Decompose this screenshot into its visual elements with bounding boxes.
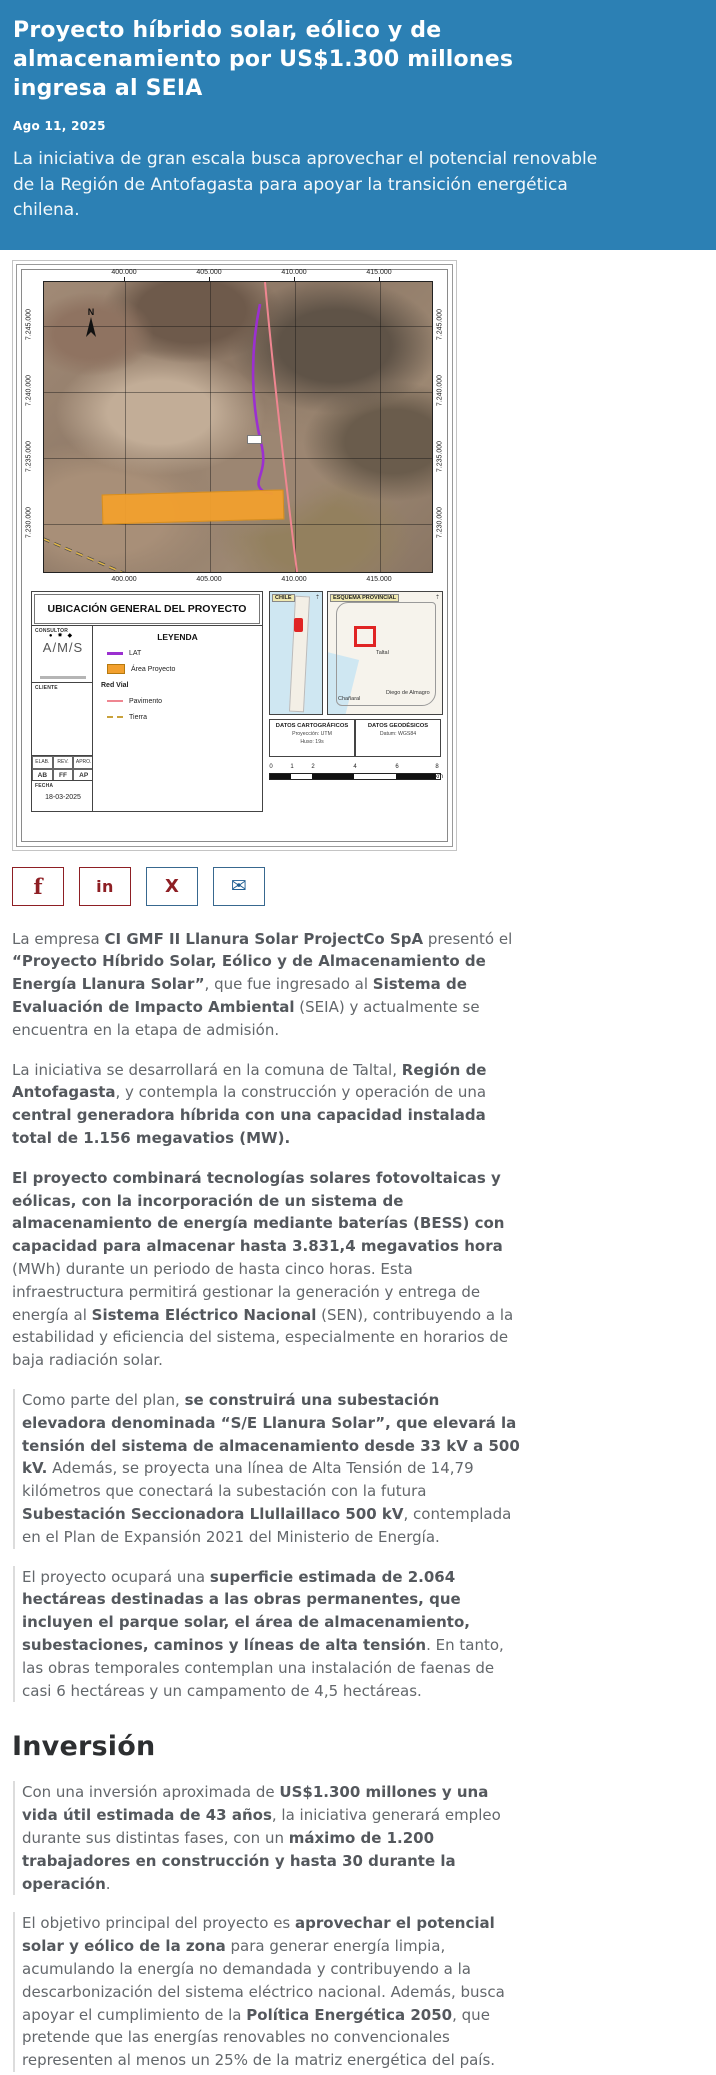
datos-title: DATOS CARTOGRÁFICOS [270, 723, 354, 729]
map-y-label: 7.230.000 [437, 497, 444, 547]
esquema-provincial-inset: ESQUEMA PROVINCIAL ⇡ Taltal Chañaral Die… [327, 591, 443, 715]
scale-tick: 6 [395, 764, 398, 770]
map-y-label: 7.235.000 [26, 431, 33, 481]
fecha-box: FECHA 18-03-2025 [31, 780, 95, 812]
project-location-map: 400.000 405.000 410.000 415.000 400.000 … [12, 260, 457, 851]
article-paragraph: Con una inversión aproximada de US$1.300… [13, 1781, 524, 1895]
scale-tick: 0 [269, 764, 272, 770]
share-email-button[interactable]: ✉ [213, 867, 265, 906]
map-x-label: 405.000 [177, 576, 241, 583]
article-paragraph: El proyecto combinará tecnologías solare… [12, 1167, 524, 1372]
map-y-label: 7.245.000 [437, 299, 444, 349]
area-swatch [107, 664, 125, 674]
map-y-label: 7.240.000 [437, 365, 444, 415]
legend-item: LAT [129, 650, 141, 657]
north-label: N [88, 307, 95, 317]
scale-seg [354, 774, 396, 779]
facebook-icon: f [33, 874, 42, 899]
north-arrow-small: ⇡ [315, 594, 320, 601]
scale-bar: 0 1 2 4 6 8 km [269, 764, 441, 790]
datos-line: Huso: 19s [270, 739, 354, 745]
datos-line: Datum: WGS84 [356, 731, 440, 737]
map-x-label: 410.000 [262, 269, 326, 276]
article-paragraph: El objetivo principal del proyecto es ap… [13, 1912, 524, 2072]
scale-seg [291, 774, 312, 779]
pavimento-road-line [265, 282, 297, 572]
chile-inset-label: CHILE [272, 594, 295, 602]
publish-date: Ago 11, 2025 [13, 119, 702, 133]
approvals-header: APRO. [73, 756, 94, 769]
map-y-label: 7.230.000 [26, 497, 33, 547]
scale-tick: 8 [435, 764, 438, 770]
consultor-logo: A/M/S [32, 640, 94, 655]
datos-line: Proyección: UTM [270, 731, 354, 737]
section-heading: Inversión [12, 1726, 524, 1767]
scale-seg [312, 774, 354, 779]
datos-cartograficos: DATOS CARTOGRÁFICOS Proyección: UTM Huso… [269, 719, 355, 757]
datos-row: DATOS CARTOGRÁFICOS Proyección: UTM Huso… [269, 719, 441, 757]
north-arrow-small: ⇡ [435, 594, 440, 601]
map-x-label: 410.000 [262, 576, 326, 583]
map-x-label: 405.000 [177, 269, 241, 276]
legend-item: Área Proyecto [131, 666, 175, 673]
share-x-button[interactable]: X [146, 867, 198, 906]
tierra-road-line [44, 534, 126, 572]
datos-title: DATOS GEODÉSICOS [356, 723, 440, 729]
region-highlight [294, 618, 303, 632]
inset-town-label: Taltal [376, 650, 389, 656]
legend-group: Red Vial [101, 682, 129, 689]
consultor-box: CONSULTOR ●✸◆ A/M/S [31, 625, 95, 685]
project-area-polygon [102, 489, 285, 524]
scale-tick: 2 [311, 764, 314, 770]
approvals-header: REV. [53, 756, 74, 769]
legend-item: Tierra [129, 714, 147, 721]
map-x-label: 415.000 [347, 576, 411, 583]
project-location-marker [354, 626, 376, 647]
article-paragraph: Como parte del plan, se construirá una s… [13, 1389, 524, 1549]
map-x-label: 400.000 [92, 269, 156, 276]
scale-seg [396, 774, 436, 779]
map-y-label: 7.235.000 [437, 431, 444, 481]
tierra-road-line [44, 534, 126, 572]
scale-tick: 1 [290, 764, 293, 770]
chile-shape [289, 595, 310, 712]
scale-tick: 4 [353, 764, 356, 770]
scale-segments [269, 773, 441, 780]
satellite-image: N [43, 281, 433, 573]
route-marker [247, 435, 262, 444]
map-y-label: 7.245.000 [26, 299, 33, 349]
inset-town-label: Diego de Almagro [386, 690, 430, 696]
chile-inset-map: CHILE ⇡ [269, 591, 323, 715]
map-lines [44, 282, 432, 572]
scale-seg [270, 774, 291, 779]
cliente-label: CLIENTE [35, 685, 58, 691]
cliente-box: CLIENTE [31, 682, 95, 758]
legend-item: Pavimento [129, 698, 162, 705]
tierra-swatch [107, 716, 123, 718]
article-header: Proyecto híbrido solar, eólico y de alma… [0, 0, 716, 250]
article-paragraph: La iniciativa se desarrollará en la comu… [12, 1059, 524, 1150]
map-title: UBICACIÓN GENERAL DEL PROYECTO [31, 591, 263, 627]
fecha-label: FECHA [35, 783, 53, 789]
north-arrow: N [84, 308, 98, 341]
scale-unit: km [435, 774, 443, 780]
approvals-header: ELAB. [32, 756, 53, 769]
lat-swatch [107, 652, 123, 655]
scale-ticks: 0 1 2 4 6 8 [269, 764, 441, 773]
linkedin-icon: in [96, 877, 114, 896]
approvals-table: ELAB. REV. APRO. AB FF AP [31, 755, 95, 783]
article-body: La empresa CI GMF II Llanura Solar Proje… [12, 928, 524, 2072]
map-x-label: 400.000 [92, 576, 156, 583]
fecha-value: 18-03-2025 [32, 794, 94, 801]
share-facebook-button[interactable]: f [12, 867, 64, 906]
ams-logo-icons: ●✸◆ [32, 632, 94, 639]
share-bar: f in X ✉ [12, 867, 716, 906]
legend-title: LEYENDA [93, 632, 262, 642]
inset-town-label: Chañaral [338, 696, 360, 702]
map-y-label: 7.240.000 [26, 365, 33, 415]
page-title: Proyecto híbrido solar, eólico y de alma… [13, 16, 569, 103]
article-paragraph: El proyecto ocupará una superficie estim… [13, 1566, 524, 1703]
esquema-inset-label: ESQUEMA PROVINCIAL [330, 594, 399, 602]
legend-box: LEYENDA LAT Área Proyecto Red Vial Pavim… [92, 625, 263, 812]
pavimento-swatch [107, 700, 123, 702]
datos-geodesicos: DATOS GEODÉSICOS Datum: WGS84 [355, 719, 441, 757]
share-linkedin-button[interactable]: in [79, 867, 131, 906]
mail-icon: ✉ [231, 877, 247, 896]
x-icon: X [165, 876, 179, 897]
map-x-label: 415.000 [347, 269, 411, 276]
article-paragraph: La empresa CI GMF II Llanura Solar Proje… [12, 928, 524, 1042]
logo-subline [40, 676, 86, 679]
article-lead: La iniciativa de gran escala busca aprov… [13, 147, 609, 224]
